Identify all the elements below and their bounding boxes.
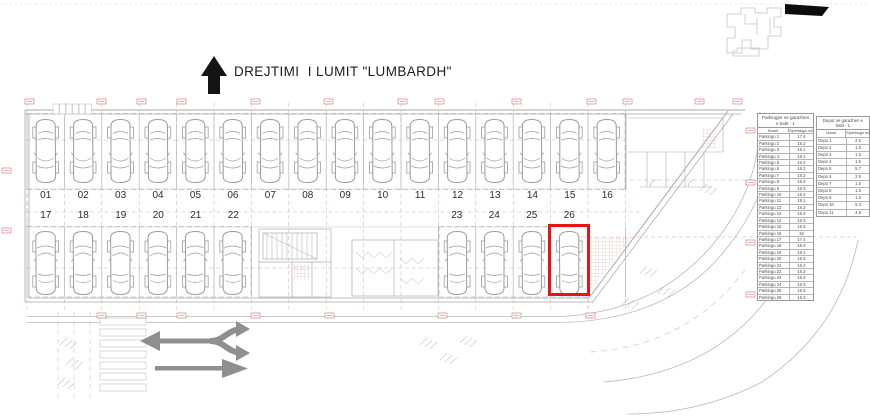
car-icon xyxy=(369,120,395,183)
car-icon xyxy=(594,120,620,183)
stall-numbers-bottom-right: 23242526 xyxy=(438,210,588,221)
depo-table-title: Depot ne garazhen e katit - 1 xyxy=(817,117,869,130)
stall-number: 07 xyxy=(252,190,289,201)
depo-area: 1.5 xyxy=(847,195,869,201)
car-icon xyxy=(519,120,545,183)
parking-area: 16.3 xyxy=(790,166,813,171)
col-header-numri: Numri xyxy=(758,128,789,133)
car-icon xyxy=(33,232,59,295)
parking-table-rows: Parkingu 1 17.4 Parkingu 2 16.3 Parkingu… xyxy=(758,134,813,300)
stall-number: 04 xyxy=(139,190,176,201)
stall-number: 03 xyxy=(102,190,139,201)
depo-table-row: Depo 11 4.8 xyxy=(817,210,869,216)
parking-area: 19.1 xyxy=(790,198,813,203)
parking-name: Parkingu 16 xyxy=(758,231,790,236)
depo-area: 1.5 xyxy=(847,159,869,165)
stall-number: 20 xyxy=(140,210,178,221)
parking-table: Parkingjet ne garazhen e katit - 1 Numri… xyxy=(757,113,814,301)
car-icon xyxy=(556,120,582,183)
depo-name: Depo 3 xyxy=(817,152,847,158)
key-plan xyxy=(727,4,829,56)
car-icon xyxy=(257,120,283,183)
stall-numbers-top: 01020304050607080910111213141516 xyxy=(27,190,626,201)
depo-area: 2.9 xyxy=(847,174,869,180)
parking-area: 16.3 xyxy=(790,173,813,178)
parking-name: Parkingu 2 xyxy=(758,141,790,146)
depo-table-header: Numri Siperfaqja m2 xyxy=(817,130,869,137)
parking-name: Parkingu 15 xyxy=(758,224,790,229)
stall-number: 15 xyxy=(551,190,588,201)
stall-number: 08 xyxy=(289,190,326,201)
straight-arrow-icon xyxy=(155,359,248,378)
stall-number: 18 xyxy=(65,210,103,221)
plan-title: DREJTIMI I LUMIT "LUMBARDH" xyxy=(234,64,452,79)
depo-area: 1.5 xyxy=(847,181,869,187)
stall-number: 19 xyxy=(102,210,140,221)
parking-area: 16.3 xyxy=(790,160,813,165)
stall-number: 21 xyxy=(177,210,215,221)
stall-number: 05 xyxy=(177,190,214,201)
depo-table-row: Depo 2 1.5 xyxy=(817,145,869,152)
parking-area: 16.3 xyxy=(790,224,813,229)
stall-numbers-bottom-left: 171819202122 xyxy=(27,210,252,221)
stall-number: 17 xyxy=(27,210,65,221)
car-icon xyxy=(519,232,545,295)
stall-number: 22 xyxy=(215,210,253,221)
car-icon xyxy=(70,232,96,295)
parking-name: Parkingu 13 xyxy=(758,211,790,216)
parking-area: 18 xyxy=(790,231,813,236)
stall-number: 26 xyxy=(551,210,589,221)
col-header-area: Siperfaqja m2 xyxy=(846,130,869,136)
depo-table-row: Depo 4 1.5 xyxy=(817,159,869,166)
depo-table-rows: Depo 1 2.5 Depo 2 1.5 Depo 3 1.5 Depo 4 … xyxy=(817,138,869,216)
parking-name: Parkingu 17 xyxy=(758,237,790,242)
car-icon xyxy=(145,232,171,295)
parking-area: 16.3 xyxy=(790,275,813,280)
depo-name: Depo 8 xyxy=(817,188,847,194)
car-icon xyxy=(182,232,208,295)
stairwell xyxy=(259,229,331,297)
depo-table-row: Depo 7 1.5 xyxy=(817,181,869,188)
parking-name: Parkingu 3 xyxy=(758,147,790,152)
parking-area: 16.3 xyxy=(790,205,813,210)
car-icon xyxy=(182,120,208,183)
parking-area: 16.3 xyxy=(790,263,813,268)
stall-number: 10 xyxy=(364,190,401,201)
depo-name: Depo 11 xyxy=(817,210,847,216)
depo-area: 2.5 xyxy=(847,138,869,144)
parking-area: 16.3 xyxy=(790,282,813,287)
depo-area: 1.5 xyxy=(847,145,869,151)
depo-area: 5.7 xyxy=(847,166,869,172)
parking-name: Parkingu 22 xyxy=(758,269,790,274)
parking-area: 16.3 xyxy=(790,295,813,300)
parking-area: 16.3 xyxy=(790,243,813,248)
parking-name: Parkingu 1 xyxy=(758,134,790,139)
parking-name: Parkingu 19 xyxy=(758,250,790,255)
parking-area: 16.3 xyxy=(790,141,813,146)
depo-name: Depo 5 xyxy=(817,166,847,172)
parking-name: Parkingu 25 xyxy=(758,288,790,293)
parking-area: 19.1 xyxy=(790,154,813,159)
parking-area: 16.3 xyxy=(790,186,813,191)
depo-table-row: Depo 10 5.3 xyxy=(817,202,869,209)
parking-name: Parkingu 5 xyxy=(758,160,790,165)
stall-number: 02 xyxy=(64,190,101,201)
traffic-arrows xyxy=(140,321,250,378)
stall-number: 01 xyxy=(27,190,64,201)
floor-plan-canvas: DREJTIMI I LUMIT "LUMBARDH" 010203040506… xyxy=(0,0,870,420)
car-icon xyxy=(70,120,96,183)
parking-area: 16.3 xyxy=(790,179,813,184)
depo-table-row: Depo 8 1.5 xyxy=(817,188,869,195)
depo-area: 1.5 xyxy=(847,188,869,194)
car-icon xyxy=(220,120,246,183)
stall-number: 06 xyxy=(214,190,251,201)
car-icon xyxy=(108,120,134,183)
depo-area: 4.8 xyxy=(847,210,869,216)
car-icon xyxy=(295,120,321,183)
parking-name: Parkingu 21 xyxy=(758,263,790,268)
stall-number: 12 xyxy=(439,190,476,201)
stall-number: 23 xyxy=(438,210,476,221)
car-icon xyxy=(407,120,433,183)
car-icon xyxy=(444,232,470,295)
parking-name: Parkingu 18 xyxy=(758,243,790,248)
depo-area: 1.5 xyxy=(847,152,869,158)
key-plan-highlighted-building xyxy=(785,4,829,16)
car-icon xyxy=(482,232,508,295)
parking-name: Parkingu 12 xyxy=(758,205,790,210)
stall-number: 14 xyxy=(514,190,551,201)
parking-area: 16.3 xyxy=(790,256,813,261)
parking-name: Parkingu 11 xyxy=(758,198,790,203)
depo-table-row: Depo 5 5.7 xyxy=(817,166,869,173)
parking-area: 16.3 xyxy=(790,269,813,274)
parking-name: Parkingu 26 xyxy=(758,295,790,300)
depo-name: Depo 7 xyxy=(817,181,847,187)
parking-name: Parkingu 8 xyxy=(758,179,790,184)
depo-table: Depot ne garazhen e katit - 1 Numri Sipe… xyxy=(816,116,870,217)
depo-name: Depo 1 xyxy=(817,138,847,144)
parking-area: 16.3 xyxy=(790,288,813,293)
stall-number: 13 xyxy=(476,190,513,201)
depo-name: Depo 9 xyxy=(817,195,847,201)
parking-table-title: Parkingjet ne garazhen e katit - 1 xyxy=(758,114,813,128)
car-icon xyxy=(145,120,171,183)
stall-number: 09 xyxy=(327,190,364,201)
depo-table-row: Depo 3 1.5 xyxy=(817,152,869,159)
car-icon xyxy=(108,232,134,295)
depo-table-row: Depo 9 1.5 xyxy=(817,195,869,202)
two-way-turn-arrow-icon xyxy=(140,321,250,361)
parking-name: Parkingu 6 xyxy=(758,166,790,171)
parking-area: 19.1 xyxy=(790,147,813,152)
car-icon xyxy=(332,120,358,183)
parking-name: Parkingu 10 xyxy=(758,192,790,197)
depo-name: Depo 2 xyxy=(817,145,847,151)
depo-name: Depo 10 xyxy=(817,202,847,208)
parking-name: Parkingu 9 xyxy=(758,186,790,191)
parking-name: Parkingu 14 xyxy=(758,218,790,223)
depo-table-row: Depo 6 2.9 xyxy=(817,174,869,181)
parking-area: 16.3 xyxy=(790,211,813,216)
parking-area: 16.3 xyxy=(790,218,813,223)
parking-name: Parkingu 7 xyxy=(758,173,790,178)
parking-name: Parkingu 24 xyxy=(758,282,790,287)
parking-area: 16.3 xyxy=(790,192,813,197)
parking-area: 17.4 xyxy=(790,237,813,242)
parking-area: 19.1 xyxy=(790,250,813,255)
parking-name: Parkingu 4 xyxy=(758,154,790,159)
parking-name: Parkingu 20 xyxy=(758,256,790,261)
parking-name: Parkingu 23 xyxy=(758,275,790,280)
depo-area: 5.3 xyxy=(847,202,869,208)
stall-number: 11 xyxy=(401,190,438,201)
col-header-area: Siperfaqja m2 xyxy=(789,128,813,133)
parking-area: 17.4 xyxy=(790,134,813,139)
car-icon xyxy=(444,120,470,183)
car-icon xyxy=(482,120,508,183)
car-icon xyxy=(33,120,59,183)
parking-table-row: Parkingu 26 16.3 xyxy=(758,295,813,300)
river-direction-arrow-icon xyxy=(201,56,227,94)
stall-number: 24 xyxy=(476,210,514,221)
stall-number: 16 xyxy=(589,190,626,201)
depo-name: Depo 6 xyxy=(817,174,847,180)
car-icon xyxy=(220,232,246,295)
depot-rooms xyxy=(628,118,723,187)
stall-number: 25 xyxy=(513,210,551,221)
depo-table-row: Depo 1 2.5 xyxy=(817,138,869,145)
col-header-numri: Numri xyxy=(817,130,846,136)
highlighted-stall-box xyxy=(548,224,590,296)
depo-name: Depo 4 xyxy=(817,159,847,165)
